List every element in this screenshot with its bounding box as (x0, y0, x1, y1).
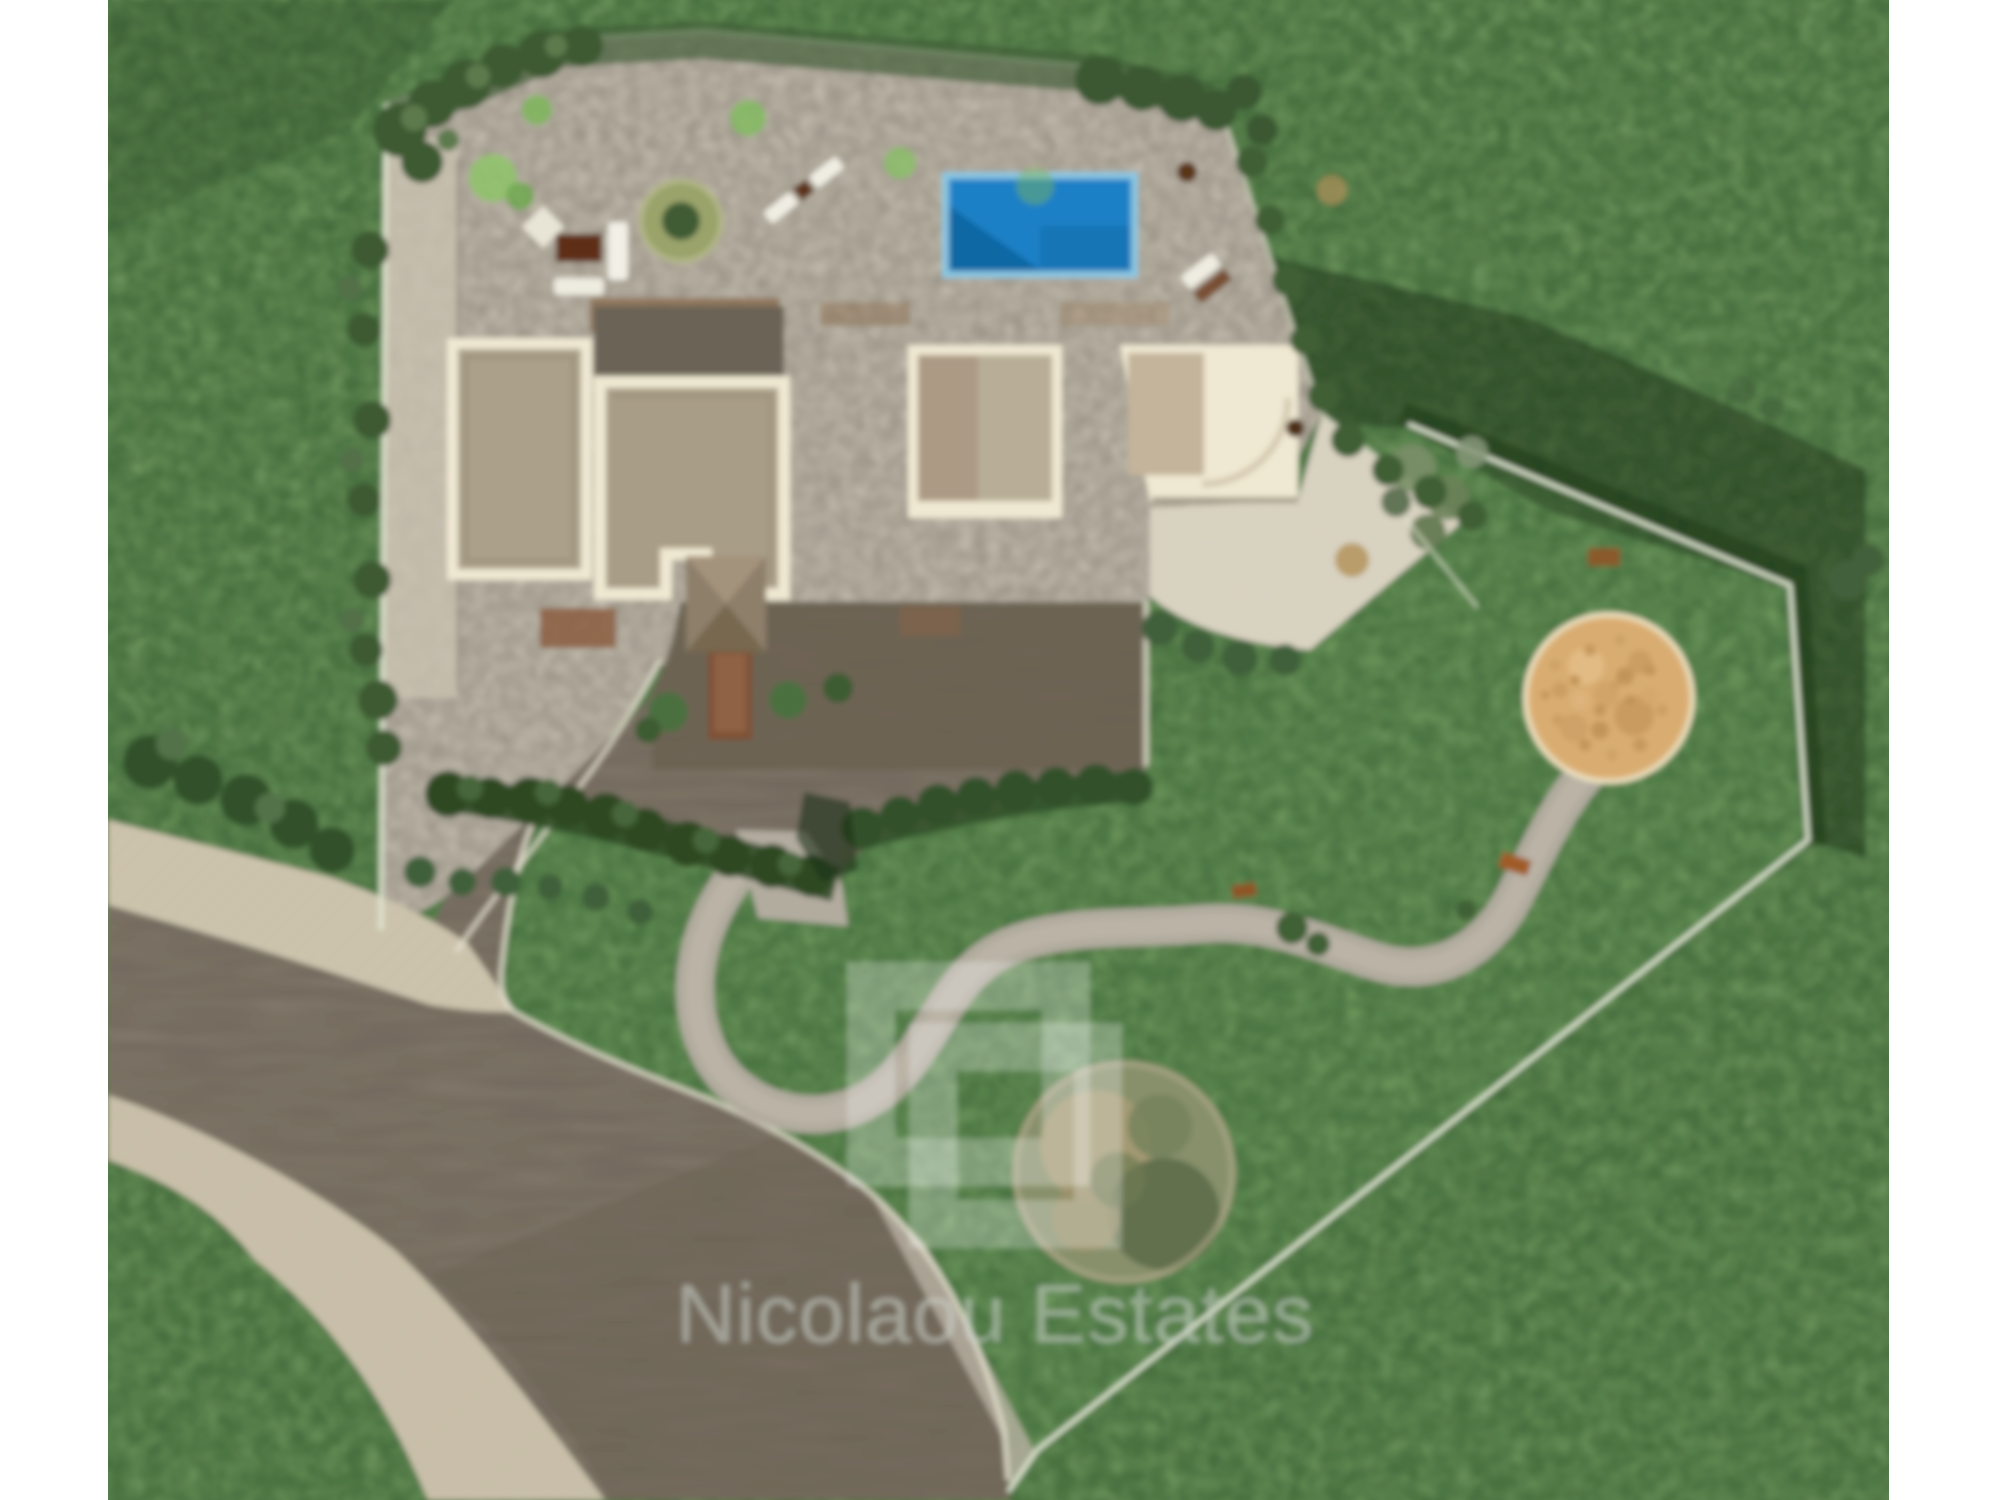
svg-text:Nicolaou Estates: Nicolaou Estates (676, 1267, 1315, 1360)
